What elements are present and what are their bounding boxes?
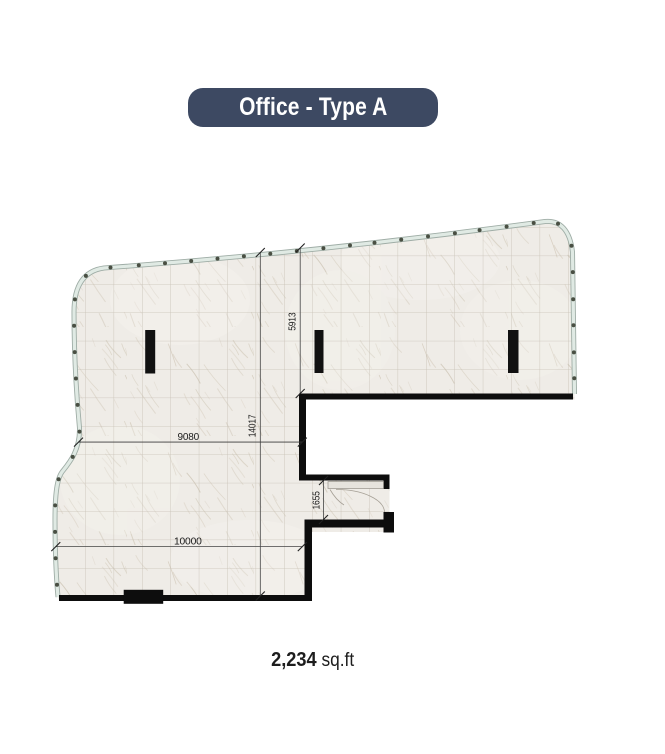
- svg-text:1655: 1655: [311, 491, 322, 509]
- svg-text:14017: 14017: [247, 415, 258, 438]
- svg-text:9080: 9080: [178, 432, 200, 443]
- svg-text:10000: 10000: [174, 537, 202, 548]
- svg-text:5913: 5913: [287, 313, 298, 331]
